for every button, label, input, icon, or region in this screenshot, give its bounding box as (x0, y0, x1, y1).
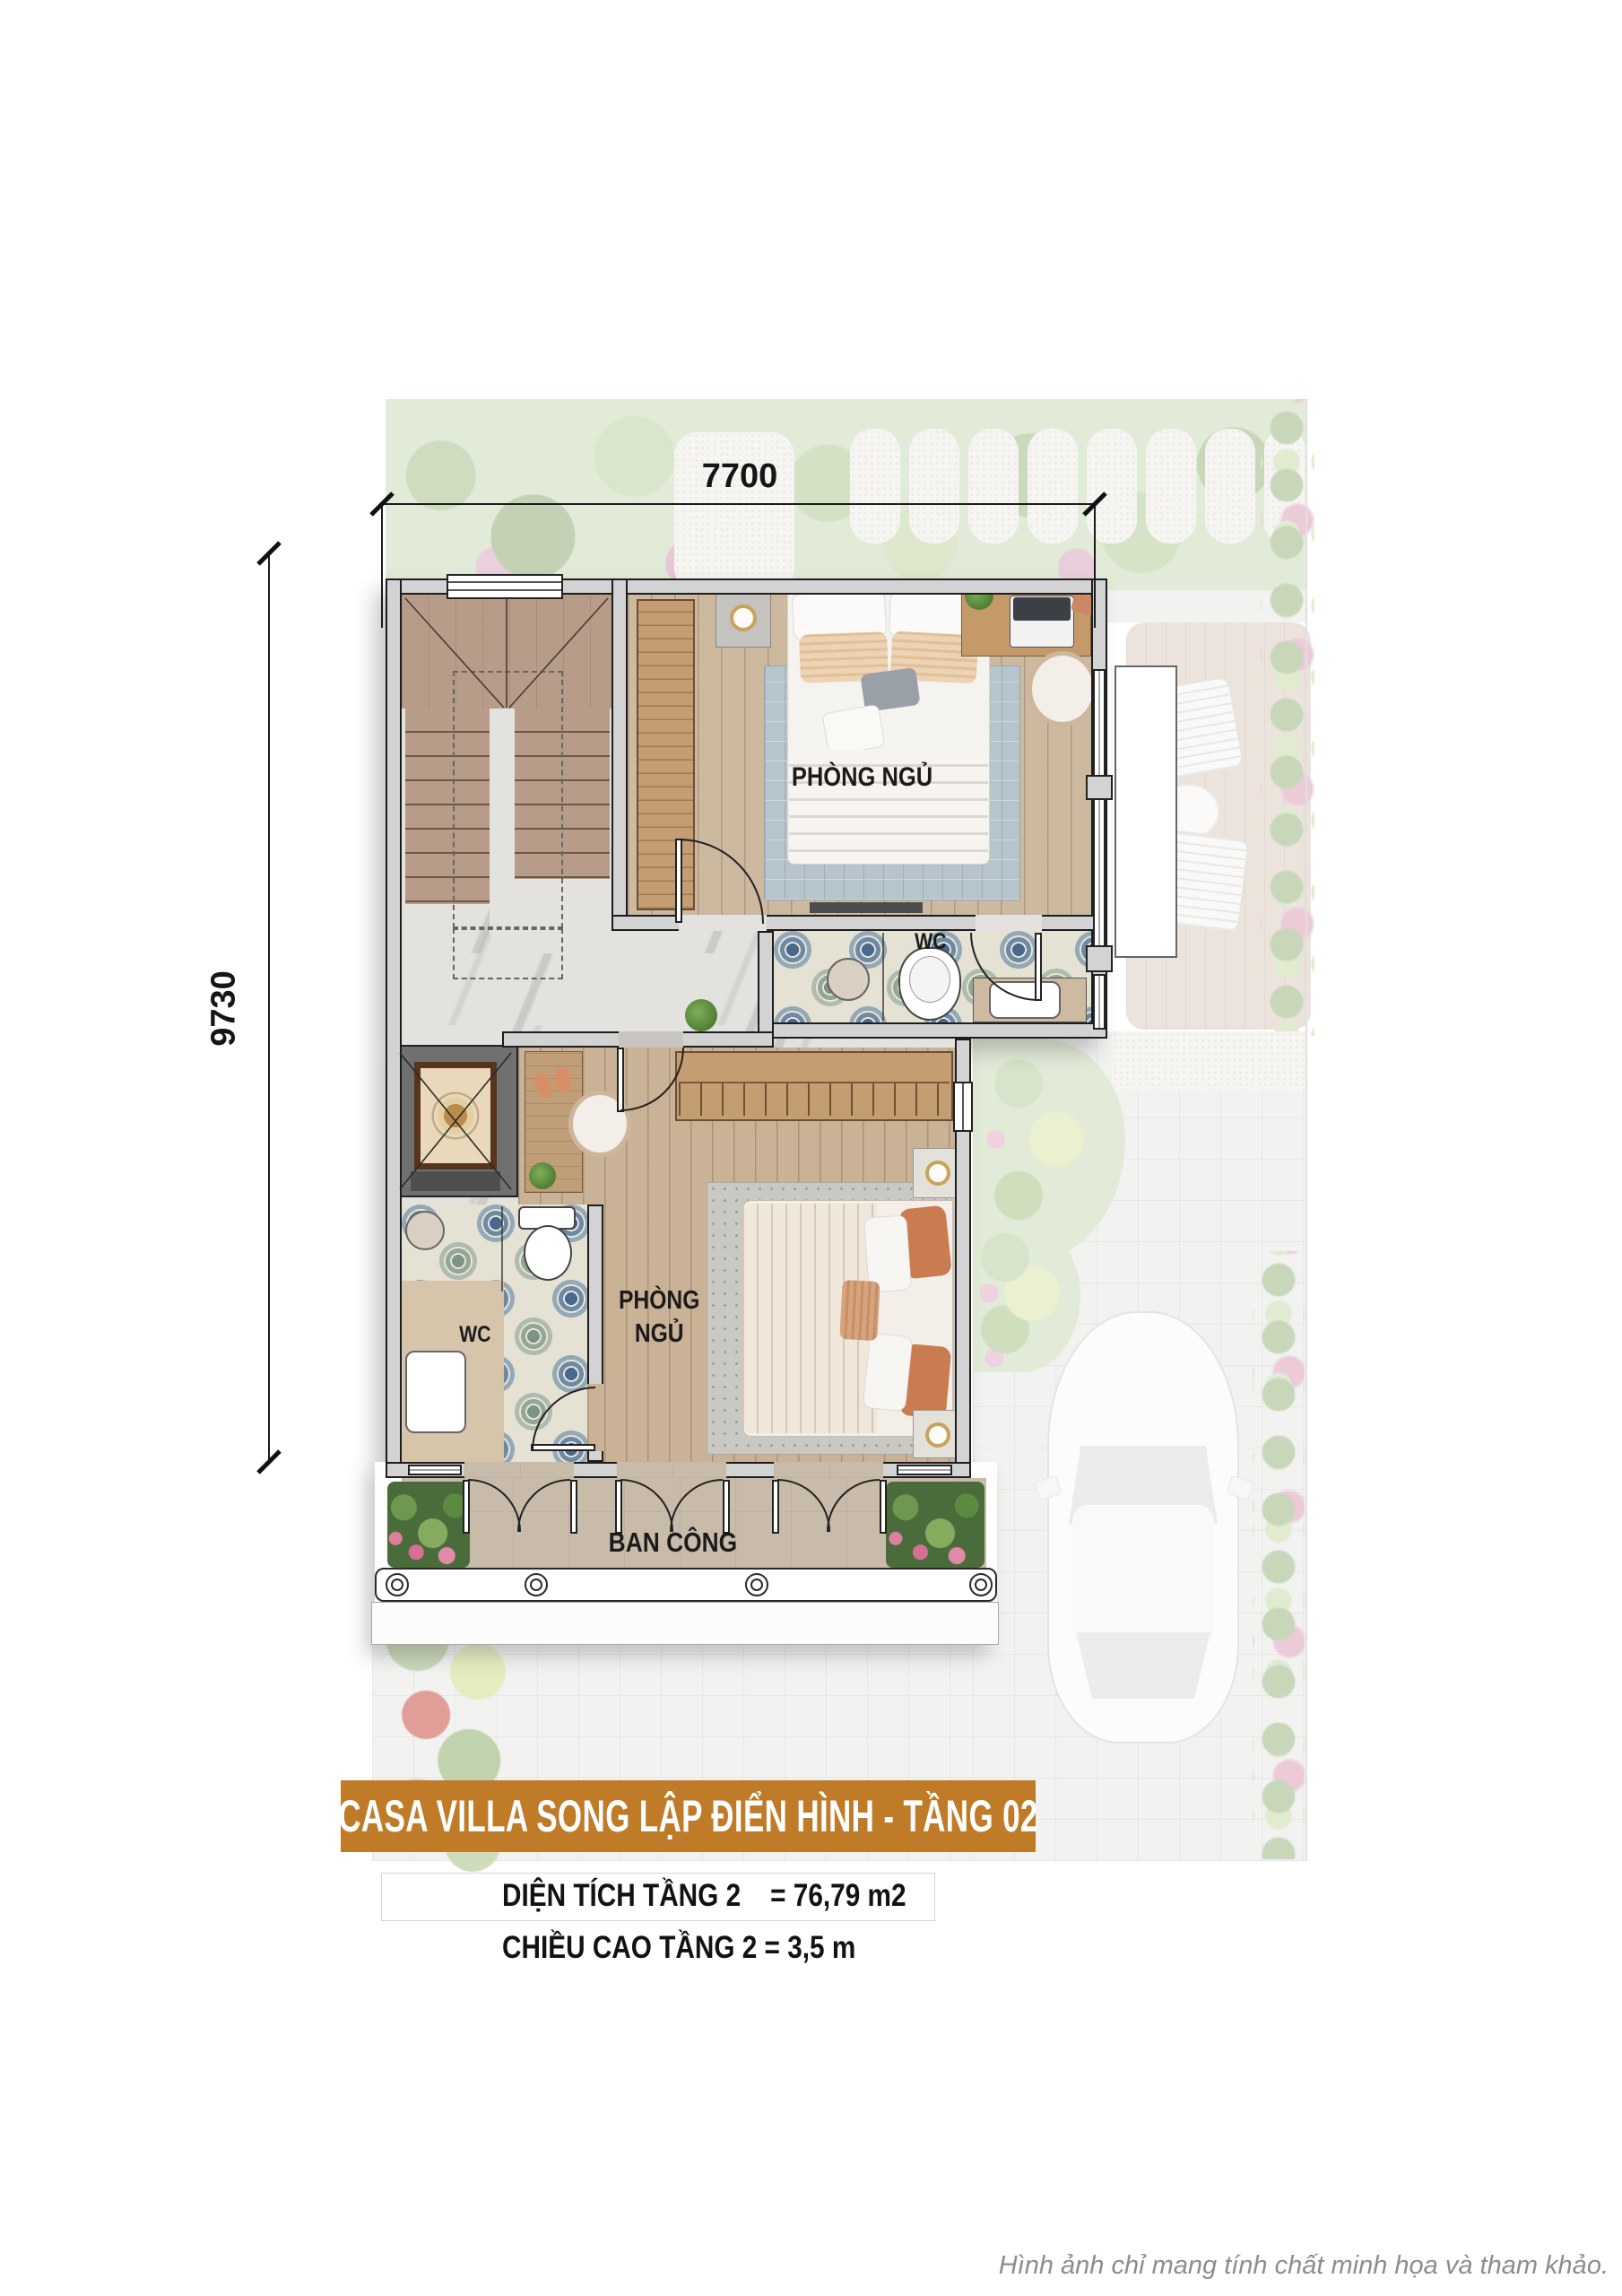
wardrobe-rail (679, 1082, 950, 1116)
door-opening (774, 1462, 883, 1478)
bedroom-1-label: PHÒNG NGỦ (755, 762, 970, 793)
balcony-label: BAN CÔNG (574, 1526, 771, 1559)
stepping-stone (968, 429, 1019, 544)
wall (386, 578, 402, 1478)
window-icon (953, 1082, 973, 1132)
wall (612, 578, 628, 931)
stepping-stone (1146, 429, 1196, 544)
shower-icon (405, 1211, 445, 1250)
window-pier (1086, 945, 1113, 972)
door-opening (464, 1462, 574, 1478)
door-leaf (772, 1480, 779, 1534)
plant-icon (685, 999, 717, 1031)
window-icon (1093, 974, 1106, 1030)
pillow (863, 1333, 914, 1413)
stepping-stone (674, 432, 794, 592)
speckled-band (1112, 1031, 1307, 1091)
balcony-planter-icon (886, 1482, 984, 1568)
area-text: DIỆN TÍCH TẦNG 2 = 76,79 m2 (502, 1878, 906, 1914)
door-leaf (1035, 933, 1042, 1001)
elevator-sill (411, 1171, 500, 1191)
shower-icon (827, 958, 870, 1001)
canopy-outline (1115, 665, 1177, 958)
window-icon (1093, 669, 1106, 778)
elevator-carpet (414, 1062, 497, 1170)
pillow (839, 1280, 880, 1341)
car-roof (1072, 1505, 1214, 1647)
plant-border-driveway (1253, 1251, 1305, 1859)
stepping-stone (1087, 429, 1137, 544)
balcony-planter-icon (387, 1482, 470, 1568)
dim-width-label: 7700 (677, 457, 802, 496)
toilet-bowl (524, 1225, 572, 1281)
dim-height-label: 9730 (205, 955, 244, 1063)
sink-icon (989, 981, 1061, 1019)
toilet-seat (909, 956, 950, 1003)
lamp-icon (730, 604, 757, 631)
wc-1-label: WC (904, 929, 958, 955)
window-icon (897, 1465, 952, 1475)
stepping-stone (909, 429, 959, 544)
door-leaf (723, 1480, 730, 1534)
door-opening (679, 915, 767, 931)
wall (758, 1022, 1107, 1039)
window-pier (1086, 775, 1113, 800)
height-text: CHIỀU CAO TẦNG 2 = 3,5 m (502, 1930, 855, 1966)
laptop-keyboard (1013, 597, 1071, 621)
car-icon (1047, 1311, 1239, 1744)
stepping-stone (1028, 429, 1078, 544)
column-icon (745, 1573, 768, 1596)
door-opening (587, 1384, 603, 1451)
disclaimer-text: Hình ảnh chỉ mang tính chất minh họa và … (968, 2251, 1609, 2281)
door-leaf (531, 1444, 595, 1451)
sink-icon (405, 1351, 466, 1433)
column-icon (386, 1573, 409, 1596)
door-leaf (570, 1480, 577, 1534)
title-banner: CASA VILLA SONG LẬP ĐIỂN HÌNH - TẦNG 02 (341, 1780, 1036, 1852)
column-icon (969, 1573, 993, 1596)
site-boundary-line (1305, 399, 1307, 1861)
wc-2-label: WC (448, 1322, 502, 1348)
bedroom-2-label: PHÒNG NGỦ (583, 1284, 735, 1351)
door-leaf (675, 839, 682, 923)
door-opening (976, 915, 1042, 931)
window-icon (1093, 798, 1106, 947)
door-leaf (617, 1048, 624, 1112)
car-rear-window (1076, 1632, 1210, 1699)
wardrobe-icon (637, 599, 695, 910)
stairs-guide-dashed (453, 671, 563, 928)
door-leaf (880, 1480, 887, 1534)
lamp-icon (925, 1161, 950, 1186)
lamp-icon (925, 1422, 950, 1448)
column-icon (525, 1573, 548, 1596)
stepping-stone (850, 429, 900, 544)
window-icon (447, 574, 563, 599)
door-opening (617, 1462, 726, 1478)
stairs-guide-dashed (453, 928, 563, 979)
stepping-stone (1205, 429, 1255, 544)
door-threshold (619, 1031, 683, 1048)
desk-chair-icon (1028, 651, 1097, 726)
plant-icon (529, 1162, 556, 1189)
floor-plan-page: PHÒNG NGỦ WC PHÒNG NGỦ WC BAN CÔNG 7700 … (0, 0, 1622, 2296)
eave-band (371, 1602, 999, 1645)
window-icon (408, 1465, 462, 1475)
door-leaf (615, 1480, 622, 1534)
wall (758, 931, 774, 1039)
door-leaf (463, 1480, 470, 1534)
balcony-slab (375, 1568, 997, 1602)
tv-shelf-icon (810, 902, 923, 913)
